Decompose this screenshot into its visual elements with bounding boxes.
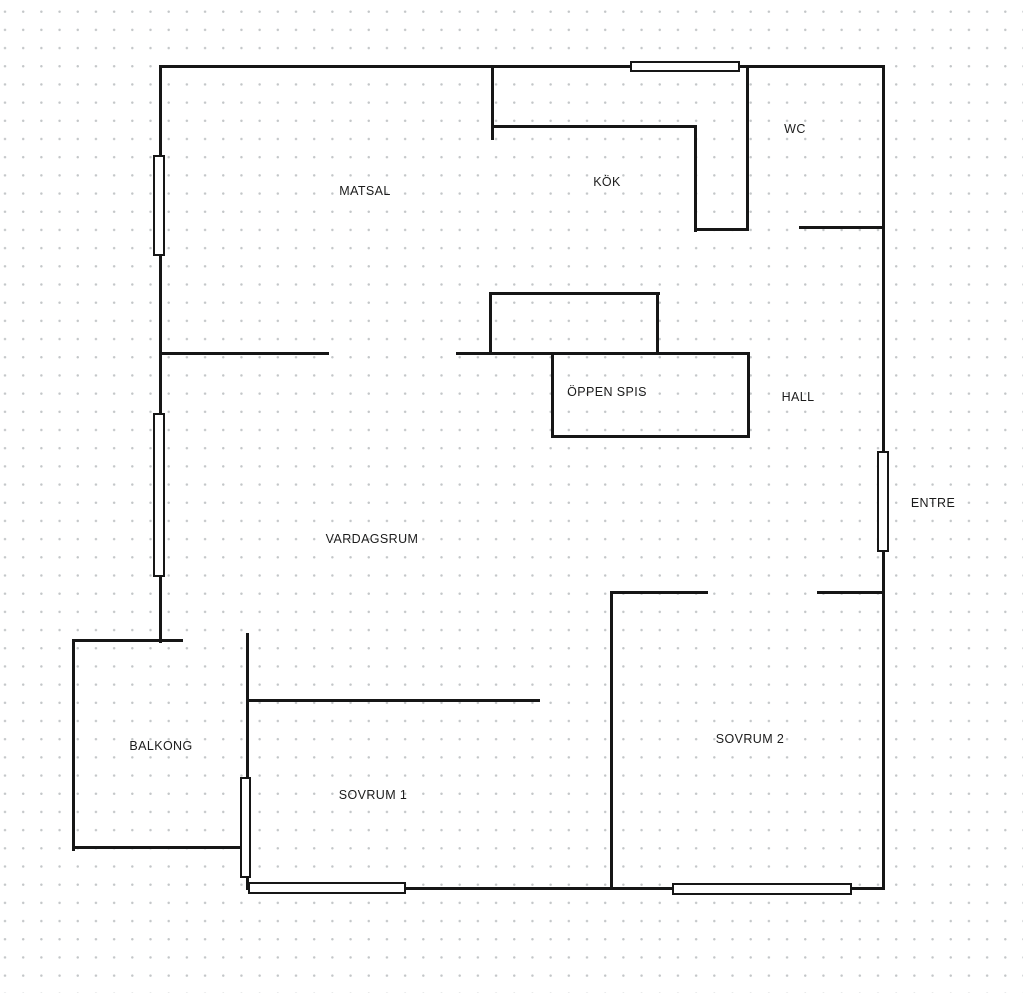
wall-kitchen-top — [491, 125, 697, 128]
wall-kitchen-inner-right — [694, 125, 697, 232]
wall-sovrum2-top-left — [610, 591, 708, 594]
room-label-hall: HALL — [782, 390, 815, 404]
wall-fireplace-upper-right — [656, 292, 659, 354]
window-balcony-door — [240, 777, 251, 878]
room-label-vardagsrum: VARDAGSRUM — [326, 532, 419, 546]
floor-plan-canvas: MATSALKÖKWCÖPPEN SPISHALLENTREVARDAGSRUM… — [0, 0, 1023, 993]
wall-kitchen-wc-divider — [746, 65, 749, 231]
wall-kitchen-bottom — [694, 228, 749, 231]
room-label-entre: ENTRE — [911, 496, 955, 510]
wall-matsal-south — [159, 352, 329, 355]
wall-fireplace-lower-left — [551, 353, 554, 438]
room-label-kok: KÖK — [593, 175, 621, 189]
wall-sovrum-divider — [610, 591, 613, 890]
room-label-balkong: BALKONG — [129, 739, 192, 753]
wall-fireplace-lower-bottom — [551, 435, 750, 438]
wall-fireplace-lower-right — [747, 353, 750, 438]
wall-kitchen-entry-stub — [491, 65, 494, 140]
wall-sovrum1-top — [246, 699, 540, 702]
wall-balcony-bottom — [72, 846, 244, 849]
room-label-wc: WC — [784, 122, 806, 136]
window-top-kok — [630, 61, 740, 72]
window-entre-door — [877, 451, 889, 552]
wall-fireplace-upper-left — [489, 292, 492, 354]
room-label-sovrum-2: SOVRUM 2 — [716, 732, 785, 746]
window-left-matsal — [153, 155, 165, 256]
wall-wc-bottom — [799, 226, 885, 229]
room-label-oppen-spis: ÖPPEN SPIS — [567, 385, 647, 399]
wall-sovrum1-left-upper — [246, 633, 249, 779]
wall-fireplace-wall — [456, 352, 750, 355]
window-left-vardagsrum — [153, 413, 165, 577]
window-bottom-sovrum1 — [248, 882, 406, 894]
room-label-matsal: MATSAL — [339, 184, 391, 198]
room-label-sovrum-1: SOVRUM 1 — [339, 788, 408, 802]
wall-balcony-left — [72, 639, 75, 851]
wall-balcony-top — [72, 639, 183, 642]
wall-sovrum2-top-right — [817, 591, 885, 594]
wall-outer-top — [159, 65, 885, 68]
window-bottom-sovrum2 — [672, 883, 852, 895]
wall-fireplace-upper-top — [489, 292, 660, 295]
